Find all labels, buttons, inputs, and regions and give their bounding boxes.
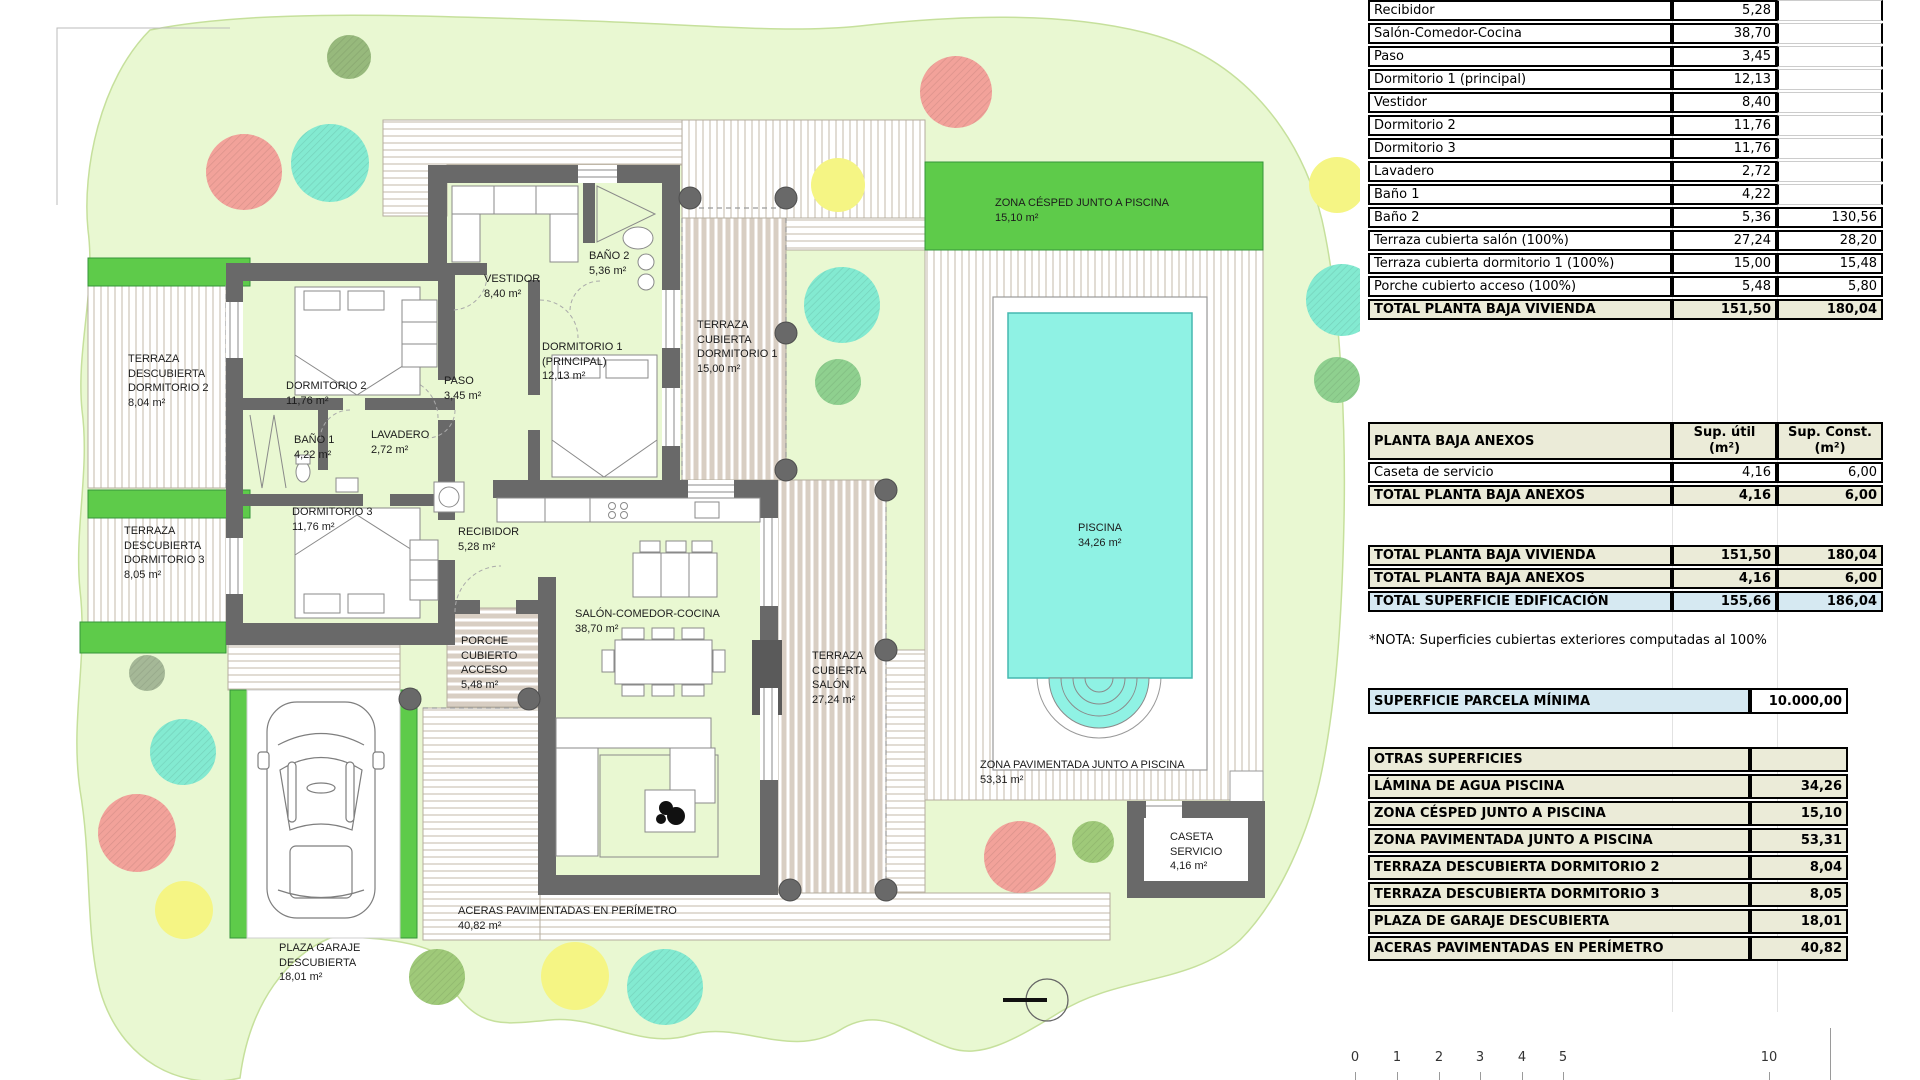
room-label-lavadero: LAVADERO2,72 m² — [371, 428, 451, 457]
room-label-recibidor: RECIBIDOR5,28 m² — [458, 525, 548, 554]
cell-sup-util: 4,16 — [1672, 568, 1777, 589]
cell-section-title: PLANTA BAJA ANEXOS — [1368, 422, 1672, 460]
total-row: TOTAL PLANTA BAJA VIVIENDA151,50180,04 — [1368, 545, 1883, 566]
cell-sup-util: 155,66 — [1672, 591, 1777, 612]
cell-sup-const: 186,04 — [1777, 591, 1883, 612]
cell-sup-const — [1777, 92, 1883, 113]
table-row: Porche cubierto acceso (100%)5,485,80 — [1368, 276, 1883, 297]
table-row: TERRAZA DESCUBIERTA DORMITORIO 38,05 — [1368, 882, 1848, 907]
table-row: Baño 25,36130,56 — [1368, 207, 1883, 228]
cell-label: ZONA PAVIMENTADA JUNTO A PISCINA — [1368, 828, 1750, 853]
cell-value: 8,05 — [1750, 882, 1848, 907]
cell-sup-const: 130,56 — [1777, 207, 1883, 228]
pool-water — [1008, 313, 1192, 678]
totals-summary-table: TOTAL PLANTA BAJA VIVIENDA151,50180,04 T… — [1368, 543, 1883, 614]
cell-label: ZONA CÉSPED JUNTO A PISCINA — [1368, 801, 1750, 826]
table-row: Recibidor5,28 — [1368, 0, 1883, 21]
cell-sup-const: 5,80 — [1777, 276, 1883, 297]
table-row: Salón-Comedor-Cocina38,70 — [1368, 23, 1883, 44]
zone-label-cesped: ZONA CÉSPED JUNTO A PISCINA15,10 m² — [995, 196, 1255, 225]
table-row: PLAZA DE GARAJE DESCUBIERTA18,01 — [1368, 909, 1848, 934]
room-label-dormitorio-2: DORMITORIO 211,76 m² — [286, 379, 396, 408]
scale-tick — [1355, 1072, 1356, 1080]
room-label-salon-comedor-cocina: SALÓN-COMEDOR-COCINA38,70 m² — [575, 607, 755, 636]
room-label-terraza-descubierta-dormitorio-2: TERRAZA DESCUBIERTA DORMITORIO 28,04 m² — [128, 352, 228, 410]
cell-label: Recibidor — [1368, 0, 1672, 21]
cell-sup-util: 4,16 — [1672, 462, 1777, 483]
cell-value: 10.000,00 — [1750, 688, 1848, 714]
scale-tick — [1522, 1072, 1523, 1080]
cell-label: Paso — [1368, 46, 1672, 67]
table-row: TERRAZA DESCUBIERTA DORMITORIO 28,04 — [1368, 855, 1848, 880]
cell-label: Terraza cubierta salón (100%) — [1368, 230, 1672, 251]
room-label-bano-2: BAÑO 25,36 m² — [589, 249, 659, 278]
site-plan-sheet: TERRAZA DESCUBIERTA DORMITORIO 28,04 m² … — [0, 0, 1920, 1080]
scale-number: 10 — [1757, 1050, 1781, 1065]
table-row: Dormitorio 311,76 — [1368, 138, 1883, 159]
cell-sup-util: 4,16 — [1672, 485, 1777, 506]
cell-label: Dormitorio 3 — [1368, 138, 1672, 159]
scale-number: 2 — [1427, 1050, 1451, 1065]
cell-sup-util: 8,40 — [1672, 92, 1777, 113]
cell-label: TOTAL PLANTA BAJA ANEXOS — [1368, 568, 1672, 589]
scale-tick — [1480, 1072, 1481, 1080]
room-label-dormitorio-1: DORMITORIO 1 (PRINCIPAL)12,13 m² — [542, 340, 652, 384]
zone-label-pavimentada: ZONA PAVIMENTADA JUNTO A PISCINA53,31 m² — [980, 758, 1260, 787]
table-row: Terraza cubierta salón (100%)27,2428,20 — [1368, 230, 1883, 251]
cell-sup-util: 3,45 — [1672, 46, 1777, 67]
table-row: Dormitorio 211,76 — [1368, 115, 1883, 136]
table-row: ZONA CÉSPED JUNTO A PISCINA15,10 — [1368, 801, 1848, 826]
col-header-sup-util: Sup. útil (m²) — [1672, 422, 1777, 460]
cell-sup-util: 27,24 — [1672, 230, 1777, 251]
cell-sup-util: 5,28 — [1672, 0, 1777, 21]
table-row: Dormitorio 1 (principal)12,13 — [1368, 69, 1883, 90]
table-row: Caseta de servicio4,166,00 — [1368, 462, 1883, 483]
cell-value: 40,82 — [1750, 936, 1848, 961]
cell-label: Dormitorio 2 — [1368, 115, 1672, 136]
scale-tick — [1563, 1072, 1564, 1080]
cell-label: TOTAL PLANTA BAJA ANEXOS — [1368, 485, 1672, 506]
table-row: ACERAS PAVIMENTADAS EN PERÍMETRO40,82 — [1368, 936, 1848, 961]
cell-sup-const: 15,48 — [1777, 253, 1883, 274]
room-label-bano-1: BAÑO 14,22 m² — [294, 433, 364, 462]
table-row: SUPERFICIE PARCELA MÍNIMA10.000,00 — [1368, 688, 1848, 714]
scale-tick — [1397, 1072, 1398, 1080]
cell-label: SUPERFICIE PARCELA MÍNIMA — [1368, 688, 1750, 714]
room-label-vestidor: VESTIDOR8,40 m² — [484, 272, 574, 301]
cell-sup-const — [1777, 46, 1883, 67]
sheet-edge-mark — [1830, 1028, 1831, 1080]
zone-label-plaza-garaje: PLAZA GARAJE DESCUBIERTA18,01 m² — [279, 941, 389, 985]
header-row: OTRAS SUPERFICIES — [1368, 747, 1848, 772]
cell-sup-util: 151,50 — [1672, 299, 1777, 320]
grand-total-row: TOTAL SUPERFICIE EDIFICACIÓN155,66186,04 — [1368, 591, 1883, 612]
total-row: TOTAL PLANTA BAJA ANEXOS4,166,00 — [1368, 568, 1883, 589]
cell-sup-const — [1777, 0, 1883, 21]
room-label-dormitorio-3: DORMITORIO 311,76 m² — [292, 505, 402, 534]
car — [258, 702, 384, 918]
vivienda-areas-table: Recibidor5,28 Salón-Comedor-Cocina38,70 … — [1368, 0, 1883, 322]
cell-label: TOTAL PLANTA BAJA VIVIENDA — [1368, 299, 1672, 320]
zone-label-aceras: ACERAS PAVIMENTADAS EN PERÍMETRO40,82 m² — [458, 904, 738, 933]
total-row: TOTAL PLANTA BAJA ANEXOS4,166,00 — [1368, 485, 1883, 506]
cell-blank — [1750, 747, 1848, 772]
cell-sup-util: 5,48 — [1672, 276, 1777, 297]
cell-label: Caseta de servicio — [1368, 462, 1672, 483]
col-header-sup-const: Sup. Const. (m²) — [1777, 422, 1883, 460]
table-row: Paso3,45 — [1368, 46, 1883, 67]
scale-number: 4 — [1510, 1050, 1534, 1065]
zone-label-piscina: PISCINA34,26 m² — [1078, 521, 1168, 550]
cell-value: 18,01 — [1750, 909, 1848, 934]
cell-label: Dormitorio 1 (principal) — [1368, 69, 1672, 90]
scale-tick — [1439, 1072, 1440, 1080]
scale-number: 1 — [1385, 1050, 1409, 1065]
cell-label: Porche cubierto acceso (100%) — [1368, 276, 1672, 297]
cell-sup-const: 6,00 — [1777, 568, 1883, 589]
cell-sup-const — [1777, 161, 1883, 182]
cell-sup-util: 15,00 — [1672, 253, 1777, 274]
cell-section-title: OTRAS SUPERFICIES — [1368, 747, 1750, 772]
room-label-caseta-servicio: CASETA SERVICIO4,16 m² — [1170, 830, 1250, 874]
cell-label: ACERAS PAVIMENTADAS EN PERÍMETRO — [1368, 936, 1750, 961]
cell-sup-util: 38,70 — [1672, 23, 1777, 44]
cell-value: 15,10 — [1750, 801, 1848, 826]
scale-number: 5 — [1551, 1050, 1575, 1065]
cell-sup-util: 12,13 — [1672, 69, 1777, 90]
scale-number: 0 — [1343, 1050, 1367, 1065]
table-row: Lavadero2,72 — [1368, 161, 1883, 182]
cell-sup-const: 180,04 — [1777, 545, 1883, 566]
room-label-terraza-cubierta-dormitorio-1: TERRAZA CUBIERTA DORMITORIO 115,00 m² — [697, 318, 809, 376]
cell-label: TERRAZA DESCUBIERTA DORMITORIO 2 — [1368, 855, 1750, 880]
cell-sup-const — [1777, 138, 1883, 159]
cell-sup-util: 11,76 — [1672, 138, 1777, 159]
anexos-areas-table: PLANTA BAJA ANEXOSSup. útil (m²)Sup. Con… — [1368, 420, 1883, 508]
cell-label: LÁMINA DE AGUA PISCINA — [1368, 774, 1750, 799]
cell-label: Terraza cubierta dormitorio 1 (100%) — [1368, 253, 1672, 274]
scale-number: 3 — [1468, 1050, 1492, 1065]
note-text: *NOTA: Superficies cubiertas exteriores … — [1369, 633, 1767, 648]
cell-sup-const: 28,20 — [1777, 230, 1883, 251]
total-row: TOTAL PLANTA BAJA VIVIENDA151,50180,04 — [1368, 299, 1883, 320]
cell-sup-const: 6,00 — [1777, 462, 1883, 483]
cell-sup-util: 4,22 — [1672, 184, 1777, 205]
cell-label: Salón-Comedor-Cocina — [1368, 23, 1672, 44]
room-label-paso: PASO3,45 m² — [444, 374, 504, 403]
cell-sup-const: 6,00 — [1777, 485, 1883, 506]
cell-sup-const — [1777, 23, 1883, 44]
table-row: Baño 14,22 — [1368, 184, 1883, 205]
cell-value: 53,31 — [1750, 828, 1848, 853]
room-label-porche-cubierto-acceso: PORCHE CUBIERTO ACCESO5,48 m² — [461, 634, 551, 692]
room-label-terraza-cubierta-salon: TERRAZA CUBIERTA SALÓN27,24 m² — [812, 649, 902, 707]
table-row: ZONA PAVIMENTADA JUNTO A PISCINA53,31 — [1368, 828, 1848, 853]
table-row: Vestidor8,40 — [1368, 92, 1883, 113]
parcela-minima-table: SUPERFICIE PARCELA MÍNIMA10.000,00 — [1368, 686, 1848, 716]
cell-sup-util: 151,50 — [1672, 545, 1777, 566]
cell-sup-const: 180,04 — [1777, 299, 1883, 320]
room-label-terraza-descubierta-dormitorio-3: TERRAZA DESCUBIERTA DORMITORIO 38,05 m² — [124, 524, 224, 582]
cell-value: 34,26 — [1750, 774, 1848, 799]
cell-label: Baño 1 — [1368, 184, 1672, 205]
table-row: LÁMINA DE AGUA PISCINA34,26 — [1368, 774, 1848, 799]
otras-superficies-table: OTRAS SUPERFICIES LÁMINA DE AGUA PISCINA… — [1368, 745, 1848, 963]
cell-label: Lavadero — [1368, 161, 1672, 182]
cell-label: TERRAZA DESCUBIERTA DORMITORIO 3 — [1368, 882, 1750, 907]
cell-label: Baño 2 — [1368, 207, 1672, 228]
table-row: Terraza cubierta dormitorio 1 (100%)15,0… — [1368, 253, 1883, 274]
cell-sup-const — [1777, 184, 1883, 205]
cell-sup-util: 2,72 — [1672, 161, 1777, 182]
cell-sup-util: 11,76 — [1672, 115, 1777, 136]
cell-label: PLAZA DE GARAJE DESCUBIERTA — [1368, 909, 1750, 934]
cell-sup-util: 5,36 — [1672, 207, 1777, 228]
header-row: PLANTA BAJA ANEXOSSup. útil (m²)Sup. Con… — [1368, 422, 1883, 460]
cell-sup-const — [1777, 115, 1883, 136]
cell-label: TOTAL SUPERFICIE EDIFICACIÓN — [1368, 591, 1672, 612]
cell-sup-const — [1777, 69, 1883, 90]
cell-value: 8,04 — [1750, 855, 1848, 880]
cell-label: TOTAL PLANTA BAJA VIVIENDA — [1368, 545, 1672, 566]
cell-label: Vestidor — [1368, 92, 1672, 113]
scale-tick — [1769, 1072, 1770, 1080]
